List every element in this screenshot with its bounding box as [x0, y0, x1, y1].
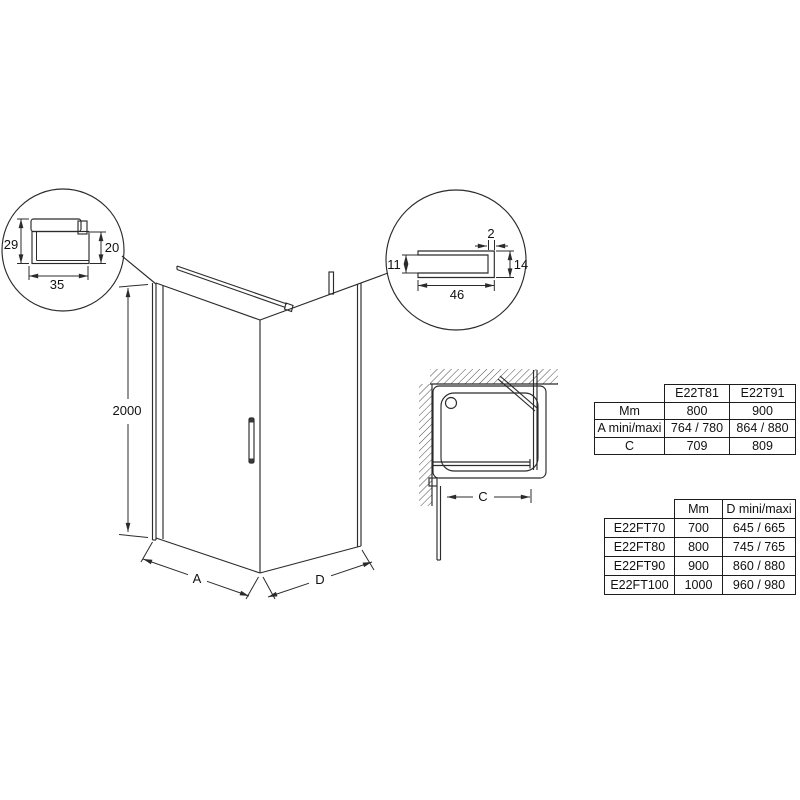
elevation-view: 2000 A D	[113, 266, 388, 599]
models-table: E22T81 E22T91 Mm 800 900 A mini/maxi 764…	[594, 384, 796, 455]
detail-circle	[386, 190, 526, 330]
dim-label-29: 29	[4, 237, 18, 252]
cell: 960 / 980	[723, 576, 796, 595]
wall-profile-left	[153, 283, 157, 540]
side-panels-table: Mm D mini/maxi E22FT70 700 645 / 665 E22…	[604, 499, 796, 595]
table-row: Mm 800 900	[595, 402, 796, 420]
wall-hatch-left	[419, 384, 432, 506]
dim-label-14: 14	[514, 257, 528, 272]
dimension-width-a: A	[141, 542, 259, 599]
table-row: E22FT100 1000 960 / 980	[605, 576, 796, 595]
dim-label-a: A	[193, 571, 202, 586]
detail-view-channel-profile: 2 11 14 46	[386, 190, 528, 330]
cell: 864 / 880	[730, 420, 796, 438]
dimension-line	[268, 583, 309, 597]
row-label: C	[595, 437, 665, 455]
dimension-depth-c: C	[447, 489, 531, 504]
row-label: E22FT100	[605, 576, 675, 595]
dim-label-20: 20	[105, 240, 119, 255]
cell: 860 / 880	[723, 557, 796, 576]
dimension-line	[143, 559, 188, 575]
dim-label-d: D	[315, 572, 324, 587]
cell: 800	[665, 402, 730, 420]
table-header-row: E22T81 E22T91	[595, 385, 796, 403]
table-row: E22FT70 700 645 / 665	[605, 519, 796, 538]
door-handle	[249, 418, 254, 463]
row-label: E22FT80	[605, 538, 675, 557]
row-label: E22FT70	[605, 519, 675, 538]
shower-tray-inner	[441, 393, 538, 471]
channel-profile	[418, 251, 494, 278]
table-row: E22FT90 900 860 / 880	[605, 557, 796, 576]
column-header: D mini/maxi	[723, 500, 796, 519]
cell: 800	[675, 538, 723, 557]
detail-view-wall-profile: 29 20 35	[2, 189, 156, 311]
cell: 700	[675, 519, 723, 538]
dim-label-46: 46	[450, 287, 464, 302]
shower-tray-outer	[433, 386, 546, 478]
cell: 645 / 665	[723, 519, 796, 538]
column-header: E22T91	[730, 385, 796, 403]
technical-drawing-page: 29 20 35 2 11 14 46	[0, 0, 800, 800]
door-bottom-edge	[156, 538, 260, 573]
column-header: E22T81	[665, 385, 730, 403]
side-panel-bottom-edge	[260, 546, 361, 573]
door-top-edge	[156, 283, 260, 320]
extension-line	[362, 550, 374, 570]
table-row: C 709 809	[595, 437, 796, 455]
cell: 809	[730, 437, 796, 455]
dimension-line	[207, 581, 249, 596]
table-header-row: Mm D mini/maxi	[605, 500, 796, 519]
blank-cell	[605, 500, 675, 519]
row-label: Mm	[595, 402, 665, 420]
plan-view: C	[419, 369, 558, 560]
cell: 900	[730, 402, 796, 420]
cell: 709	[665, 437, 730, 455]
dim-label-2000: 2000	[113, 403, 142, 418]
drain-hole	[446, 398, 457, 409]
extension-line	[141, 542, 153, 562]
dim-label-11: 11	[387, 257, 401, 272]
dim-label-2: 2	[487, 226, 494, 241]
cell: 764 / 780	[665, 420, 730, 438]
row-label: E22FT90	[605, 557, 675, 576]
stabilizer-bar	[177, 266, 293, 312]
row-label: A mini/maxi	[595, 420, 665, 438]
cell: 1000	[675, 576, 723, 595]
table-row: E22FT80 800 745 / 765	[605, 538, 796, 557]
dim-label-c: C	[478, 489, 487, 504]
table-row: A mini/maxi 764 / 780 864 / 880	[595, 420, 796, 438]
cell: 745 / 765	[723, 538, 796, 557]
column-header: Mm	[675, 500, 723, 519]
profile-channel	[32, 232, 89, 264]
dimension-height-2000: 2000	[113, 285, 148, 538]
dim-label-35: 35	[50, 277, 64, 292]
profile-tube	[31, 219, 81, 232]
wall-hatch-top	[430, 369, 558, 384]
extension-line	[119, 285, 148, 288]
detail-leader-line	[122, 256, 156, 284]
dimension-line	[331, 562, 372, 576]
cell: 900	[675, 557, 723, 576]
side-panel-top-edge	[260, 273, 388, 320]
blank-cell	[595, 385, 665, 403]
wall-bracket	[329, 272, 334, 294]
extension-line	[119, 535, 148, 538]
